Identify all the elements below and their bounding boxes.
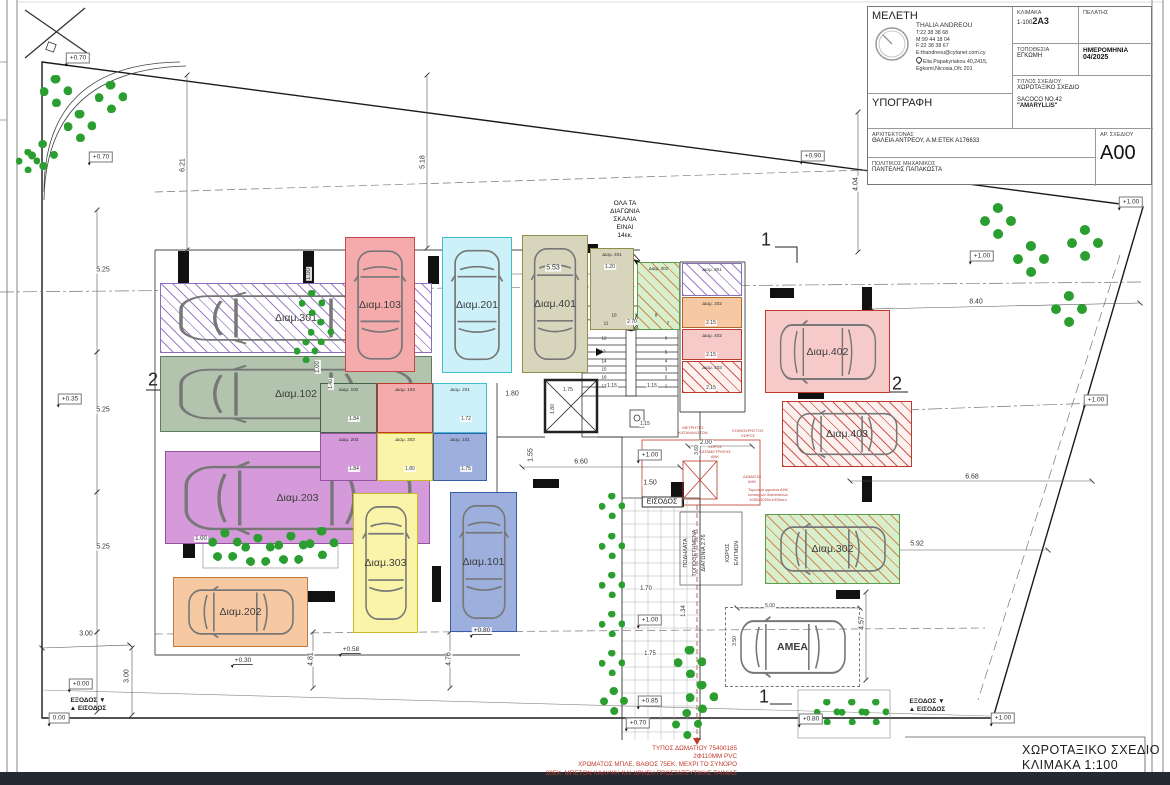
storage-room: Διαμ. 401 — [590, 248, 634, 330]
title-block: ΜΕΛΕΤΗ THALIA ANDREOUT:22 38 38 68M:99 4… — [867, 6, 1152, 185]
elevation-flag-icon: ▼ — [636, 625, 641, 631]
dimension-label: 4.57 — [859, 615, 866, 631]
firm-contact-line: Egkomi,Nicosia,Ofc 201 — [916, 66, 988, 73]
firm-contact-lines: THALIA ANDREOUT:22 38 38 68M:99 44 18 04… — [916, 23, 988, 73]
dimension-label: 4.76 — [446, 651, 453, 667]
dimension-label: 8.40 — [968, 299, 984, 306]
dimension-label: 5.25 — [95, 267, 111, 274]
client-cell: ΠΕΛΑΤΗΣ — [1079, 7, 1153, 44]
storage-room: Διαμ. 103 — [377, 383, 433, 433]
signature-label: ΥΠΟΓΡΑΦΗ — [872, 97, 932, 109]
location-value: ΕΓΚΩΜΗ — [1017, 53, 1074, 59]
storage-room-label: Διαμ. 303 — [395, 437, 415, 442]
storage-room-label: Διαμ. 301 — [702, 267, 722, 272]
dimension-label: 1.34 — [681, 604, 687, 618]
elevation-flag-icon: ▼ — [624, 728, 629, 734]
firm-logo-icon — [873, 25, 911, 63]
stair-step-number: 10 — [611, 313, 616, 318]
parking-space: Διαμ.101 — [450, 492, 517, 632]
stair-step-number: 17 — [601, 384, 606, 389]
elevation-marker: +1.00▼ — [638, 615, 662, 626]
dimension-label: 5.53 — [545, 265, 561, 272]
location-cell: ΤΟΠΟΘΕΣΙΑ ΕΓΚΩΜΗ — [1013, 44, 1079, 76]
stair-step-number: 8 — [655, 313, 658, 318]
site-plan-sheet: Διαμ.301Διαμ.102Διαμ.203Διαμ.202Διαμ.103… — [0, 0, 1170, 785]
stair-step-number: 14 — [601, 359, 606, 364]
storage-room: Διαμ. 303 — [377, 433, 433, 481]
stair-step-number: 6 — [665, 336, 668, 341]
elevation-marker: +0.70▼ — [66, 53, 90, 64]
stair-step-number: 12 — [601, 336, 606, 341]
dimension-label: 1.75 — [643, 651, 657, 657]
dimension-label: 2.15 — [705, 352, 717, 358]
parking-space-label: ΑΜΕΑ — [777, 641, 808, 653]
firm-contact-line: T:22 38 38 68 — [916, 30, 988, 37]
dimension-label: 1.55 — [528, 447, 535, 463]
firm-contact-line: E:thandreou@cytanet.com.cy — [916, 50, 988, 57]
dimension-label: 3.00 — [124, 668, 131, 684]
stair-step-number: 1 — [665, 384, 668, 389]
dimension-label: 1.84 — [348, 416, 360, 422]
dimension-label: 3.50 — [732, 635, 738, 647]
dimension-label: 1.50 — [642, 480, 658, 487]
tree-icon — [863, 699, 889, 725]
storage-room-label: Διαμ. 203 — [339, 437, 359, 442]
scale-overlay: 2A3 — [1032, 16, 1049, 26]
tree-icon — [208, 529, 242, 563]
elevation-marker: +1.00▼ — [1119, 197, 1143, 208]
parking-space-label: Διαμ.303 — [365, 557, 407, 569]
stair-step-number: 3 — [665, 367, 668, 372]
footer-title-block: ΧΩΡΟΤΑΞΙΚΟ ΣΧΕΔΙΟ ΚΛΙΜΑΚΑ 1:100 — [1022, 743, 1160, 773]
rotated-note: ΔΙΑΓΩΝΙΑ 2.76 — [701, 534, 707, 571]
section-marker: 2 — [892, 374, 902, 395]
tree-icon — [40, 75, 72, 107]
drawing-number-cell: ΑΡ. ΣΧΕΔΙΟΥ A00 — [1096, 129, 1153, 186]
stair-step-number: 5 — [665, 350, 668, 355]
parking-space-label: Διαμ.302 — [812, 543, 854, 555]
elevation-marker: +1.00▼ — [970, 251, 994, 262]
elevation-marker: +1.00▼ — [1084, 395, 1108, 406]
tree-icon — [686, 681, 718, 713]
elevation-marker: +0.70▼ — [89, 152, 113, 163]
firm-contact-line: F:22 38 38 67 — [916, 43, 988, 50]
drawing-number-label: ΑΡ. ΣΧΕΔΙΟΥ — [1100, 132, 1149, 138]
architect-value: ΘΑΛΕΙΑ ΑΝΤΡΕΟΥ, Α.Μ.ΕΤΕΚ Α176633 — [872, 138, 1091, 144]
elevation-marker: +1.00▼ — [638, 450, 662, 461]
tree-icon — [1013, 241, 1049, 277]
dimension-label: 5.25 — [95, 407, 111, 414]
scale-cell: ΚΛΙΜΑΚΑ 1-1002A3 — [1013, 7, 1079, 44]
dimension-label: 1.75 — [460, 466, 472, 472]
elevation-flag-icon: ▼ — [67, 689, 72, 695]
tree-icon — [980, 203, 1016, 239]
elevation-marker: +0.90▼ — [801, 151, 825, 162]
tree-icon — [1051, 291, 1087, 327]
utility-note: ΚΟΙΝΟΧΡΗΣΤΟΣΧΩΡΟΣ — [732, 429, 763, 439]
storage-room-label: Διαμ. 103 — [395, 387, 415, 392]
parking-space: Διαμ.201 — [442, 237, 512, 373]
elevation-flag-icon: ▼ — [636, 706, 641, 712]
elevation-flag-icon: ▼ — [469, 634, 474, 640]
parking-space-label: Διαμ.201 — [456, 299, 498, 311]
project-subname: "AMARYLLIS" — [1017, 103, 1149, 109]
date-label: ΗΜΕΡΟΜΗΝΙΑ — [1083, 47, 1149, 54]
dimension-label: 4.81 — [308, 651, 315, 667]
elevation-marker: +0.85▼ — [638, 696, 662, 707]
exit-entry-label: ΕΞΟΔΟΣ ▼▲ ΕΙΣΟΔΟΣ — [909, 698, 946, 714]
dimension-label: 1.80 — [504, 391, 520, 398]
tree-icon — [16, 149, 40, 173]
stair-step-number: 11 — [604, 321, 609, 326]
stair-step-number: 15 — [601, 367, 606, 372]
tree-icon — [672, 709, 702, 739]
dimension-label: 1.00 — [194, 536, 208, 542]
tree-icon — [599, 533, 625, 559]
drawing-title-value: ΧΩΡΟΤΑΞΙΚΟ ΣΧΕΔΙΟ — [1017, 85, 1149, 91]
parking-space-label: Διαμ.403 — [826, 428, 868, 440]
utility-note: ΧΩΡΟΣΚΑΤΑΜΕΤΡΗΣΗΣΑΗΚ — [699, 445, 731, 459]
exit-entry-label: ΕΞΟΔΟΣ ▼▲ ΕΙΣΟΔΟΣ — [70, 697, 107, 713]
firm-label: ΜΕΛΕΤΗ — [872, 10, 918, 22]
dimension-label: 5.25 — [95, 544, 111, 551]
section-marker: 2 — [148, 370, 158, 391]
dimension-label: 1.80 — [404, 466, 416, 472]
tree-icon — [95, 81, 127, 113]
dimension-label: 1.80 — [550, 403, 556, 415]
elevation-flag-icon: ▼ — [1082, 405, 1087, 411]
section-marker: 1 — [759, 687, 769, 708]
stair-step-number: 4 — [665, 359, 668, 364]
storage-room-label: Διαμ. 102 — [339, 387, 359, 392]
footer-scale: ΚΛΙΜΑΚΑ 1:100 — [1022, 758, 1160, 773]
parking-space: Διαμ.402 — [765, 310, 890, 393]
tree-icon — [64, 110, 96, 142]
tree-icon — [839, 699, 865, 725]
dimension-label: 2.15 — [705, 385, 717, 391]
elevation-flag-icon: ▼ — [47, 723, 52, 729]
storage-room-label: Διαμ. 101 — [450, 437, 470, 442]
tree-icon — [599, 611, 625, 637]
storage-room-label: Διαμ. 201 — [450, 387, 470, 392]
dimension-label: 4.04 — [853, 176, 860, 192]
firm-contact-line: Elia Papakyriakou 40,2415, — [916, 57, 988, 66]
elevation-flag-icon: ▼ — [989, 723, 994, 729]
stair-step-number: 7 — [667, 321, 670, 326]
dimension-label: 5.18 — [420, 154, 427, 170]
elevation-flag-icon: ▼ — [56, 404, 61, 410]
tree-icon — [599, 650, 625, 676]
parking-space: Διαμ.202 — [173, 577, 308, 647]
elevation-flag-icon: ▼ — [87, 162, 92, 168]
elevation-marker: +0.80▼ — [799, 714, 823, 725]
stair-step-number: 16 — [601, 375, 606, 380]
elevation-marker: +0.30▼ — [233, 657, 253, 665]
storage-room: Διαμ. 302 — [637, 262, 680, 330]
dimension-label: 1.72 — [460, 416, 472, 422]
drawing-title-cell: ΤΙΤΛΟΣ ΣΧΕΔΙΟΥ ΧΩΡΟΤΑΞΙΚΟ ΣΧΕΔΙΟ SACOCO … — [1013, 76, 1153, 129]
elevation-marker: +0.58▼ — [341, 646, 361, 654]
dimension-label: 1.15 — [639, 421, 651, 427]
dimension-label: 1.15 — [646, 383, 658, 389]
tree-icon — [600, 687, 628, 715]
stair-step-number: 13 — [600, 349, 605, 354]
elevation-flag-icon: ▼ — [64, 63, 69, 69]
storage-room: Διαμ. 301 — [682, 263, 742, 296]
parking-space: Διαμ.401 — [522, 235, 588, 373]
parking-space: Διαμ.103 — [345, 237, 415, 372]
rotated-note: ΠΟΔΗΛΑΤΑ — [683, 538, 689, 567]
tree-icon — [1067, 225, 1103, 261]
elevation-flag-icon: ▼ — [1117, 207, 1122, 213]
elevation-marker: +0.00▼ — [69, 679, 93, 690]
drawing-number-value: A00 — [1100, 142, 1149, 165]
parking-space-label: Διαμ.402 — [807, 346, 849, 358]
location-pin-icon — [915, 56, 923, 64]
utility-note: ΜΕΤΡΗΤΕΣΚΑΤΑΝΑΛΩΤΩΝ — [678, 426, 707, 436]
elevation-marker: +0.70▼ — [626, 718, 650, 729]
storage-room-label: Διαμ. 202 — [702, 301, 722, 306]
parking-space-label: Διαμ.101 — [463, 556, 505, 568]
dimension-label: 6.68 — [964, 474, 980, 481]
stairs-note: ΟΛΑ ΤΑΔΙΑΓΩΝΙΑΣΚΑΛΙΑΕΙΝΑΙ14εκ. — [610, 200, 640, 240]
parking-space-label: Διαμ.103 — [359, 299, 401, 311]
utility-note: Τομωτικά φρεάτια ΑΗΚτεσσάρων διαστάσεων1… — [748, 488, 788, 502]
engineer-value: ΠΑΝΤΕΛΗΣ ΠΑΠΑΚΩΣΤΑ — [872, 167, 1091, 173]
storage-room-label: Διαμ. 403 — [702, 365, 722, 370]
storage-room: Διαμ. 101 — [433, 433, 487, 481]
stair-step-number: 9 — [635, 313, 638, 318]
dimension-label: 1.20 — [604, 264, 616, 270]
tree-icon — [674, 646, 706, 678]
storage-room-label: Διαμ. 401 — [602, 252, 622, 257]
parking-space: Διαμ.403 — [782, 401, 912, 467]
tree-icon — [306, 527, 338, 559]
date-cell: ΗΜΕΡΟΜΗΝΙΑ 04/2025 — [1079, 44, 1153, 76]
tree-icon — [599, 493, 625, 519]
entrance-label: ΕΙΣΟΔΟΣ — [642, 497, 683, 508]
dimension-label: 5.92 — [909, 541, 925, 548]
signature-cell: ΥΠΟΓΡΑΦΗ — [868, 94, 1013, 129]
dimension-label: 1.40 — [328, 378, 334, 390]
storage-room: Διαμ. 201 — [433, 383, 487, 433]
stair-step-number: 2 — [665, 375, 668, 380]
footer-drawing-title: ΧΩΡΟΤΑΞΙΚΟ ΣΧΕΔΙΟ — [1022, 743, 1160, 758]
elevation-marker: +0.35▼ — [58, 394, 82, 405]
dimension-label: 1.00 — [315, 360, 321, 374]
elevation-flag-icon: ▼ — [797, 724, 802, 730]
firm-contact-line: M:99 44 18 04 — [916, 37, 988, 44]
elevation-flag-icon: ▼ — [230, 664, 235, 670]
elevation-flag-icon: ▼ — [338, 653, 343, 659]
tree-icon — [599, 572, 625, 598]
storage-room: Διαμ. 203 — [320, 433, 377, 481]
dimension-label: 1.75 — [562, 387, 574, 393]
elevation-marker: +1.00▼ — [991, 713, 1015, 724]
parking-space-label: Διαμ.401 — [534, 298, 576, 310]
storage-room-label: Διαμ. 302 — [649, 266, 669, 271]
dimension-label: 1.00 — [306, 267, 312, 281]
parking-space-label: Διαμ.203 — [277, 492, 319, 504]
client-label: ΠΕΛΑΤΗΣ — [1083, 10, 1149, 16]
dimension-label: 2.15 — [705, 320, 717, 326]
tree-icon — [241, 534, 275, 568]
date-value: 04/2025 — [1083, 54, 1149, 61]
parking-space-label: Διαμ.202 — [220, 606, 262, 618]
rotated-note: ΕΛΙΓΜΩΝ — [734, 541, 740, 566]
dimension-label: 1.15 — [606, 383, 618, 389]
firm-contact-line: THALIA ANDREOU — [916, 23, 988, 30]
section-marker: 1 — [761, 230, 771, 251]
dimension-label: 1.70 — [639, 586, 653, 592]
dimension-label: 6.60 — [573, 459, 589, 466]
architect-cell: ΑΡΧΙΤΕΚΤΟΝΑΣ ΘΑΛΕΙΑ ΑΝΤΡΕΟΥ, Α.Μ.ΕΤΕΚ Α1… — [868, 129, 1096, 158]
scale-value: 1-100 — [1017, 20, 1032, 26]
dimension-label: 5.00 — [764, 603, 776, 609]
pipe-note: ΤΥΠΟΣ ΔΩΜΑΤΙΟΥ 754001852Φ110ΜΜ PVCΧΡΩΜΑΤ… — [546, 745, 737, 778]
dimension-label: 2.70 — [626, 319, 638, 325]
elevation-flag-icon: ▼ — [799, 161, 804, 167]
storage-room: Διαμ. 102 — [320, 383, 377, 433]
elevation-flag-icon: ▼ — [968, 261, 973, 267]
parking-space: Διαμ.302 — [765, 514, 900, 584]
dimension-label: 3.00 — [78, 631, 94, 638]
dimension-label: 1.84 — [348, 466, 360, 472]
elevation-marker: 0.00▼ — [49, 713, 70, 724]
tree-icon — [299, 290, 325, 316]
elevation-flag-icon: ▼ — [636, 460, 641, 466]
elevation-marker: +0.80▼ — [472, 627, 492, 635]
engineer-cell: ΠΟΛΙΤΙΚΟΣ ΜΗΧΑΝΙΚΟΣ ΠΑΝΤΕΛΗΣ ΠΑΠΑΚΩΣΤΑ — [868, 158, 1096, 186]
storage-room-label: Διαμ. 402 — [702, 333, 722, 338]
tree-icon — [274, 532, 308, 566]
rotated-note: ΤΟΠΟΘΕΤΗΜΕΝΑ — [692, 530, 698, 577]
utility-note: ΔΩΜΑΤΙΟΑΗΚ — [743, 475, 761, 485]
parking-space: ΑΜΕΑ — [725, 607, 860, 687]
rotated-note: ΧΩΡΟΣ — [725, 543, 731, 562]
parking-space-label: Διαμ.102 — [275, 388, 317, 400]
dimension-label: 6.21 — [180, 157, 187, 173]
firm-cell: ΜΕΛΕΤΗ THALIA ANDREOUT:22 38 38 68M:99 4… — [868, 7, 1013, 94]
parking-space: Διαμ.303 — [353, 493, 418, 633]
